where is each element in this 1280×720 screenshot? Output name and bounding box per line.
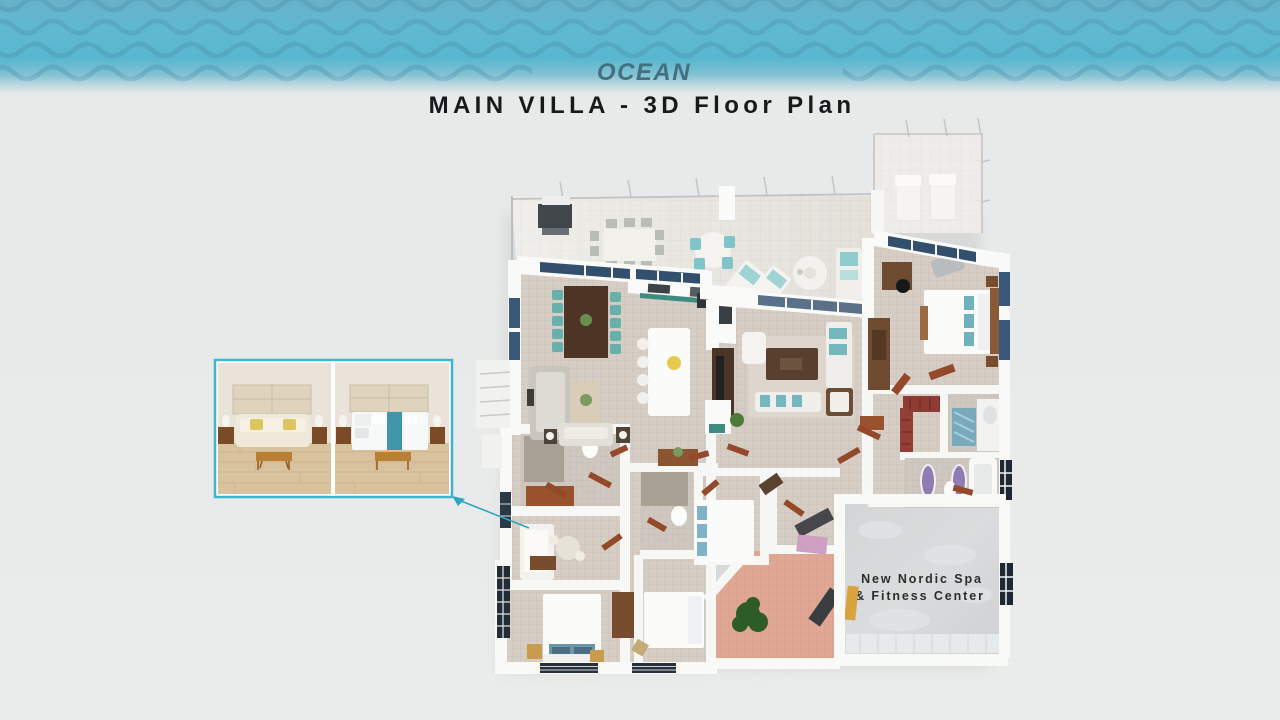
svg-text:New Nordic Spa: New Nordic Spa [861,572,983,586]
svg-text:OCEAN: OCEAN [597,59,691,86]
svg-text:& Fitness Center: & Fitness Center [855,589,985,603]
svg-text:MAIN VILLA - 3D Floor Plan: MAIN VILLA - 3D Floor Plan [429,92,856,119]
